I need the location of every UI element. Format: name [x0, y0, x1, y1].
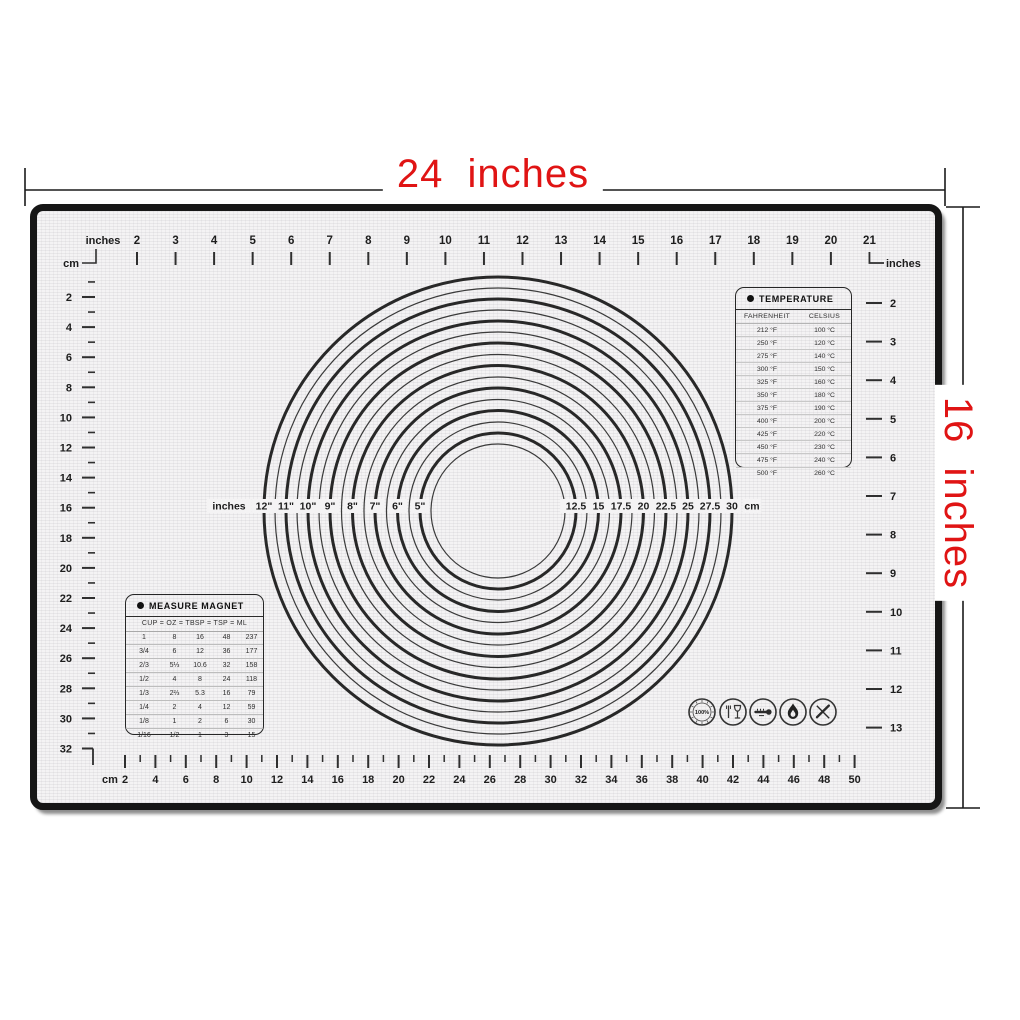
measure-row: 181648237: [126, 632, 263, 646]
measure-cell: 2: [187, 718, 213, 725]
temperature-table-title: TEMPERATURE: [736, 288, 851, 310]
measure-cell: 32: [213, 662, 240, 669]
measure-cell: 118: [240, 676, 263, 683]
measure-row: 1/24824118: [126, 673, 263, 687]
measure-cell: 4: [187, 704, 213, 711]
measure-cell: 2: [162, 704, 187, 711]
measure-row: 1/4241259: [126, 701, 263, 715]
temperature-cell: 250 °F: [736, 340, 798, 347]
temperature-cell: 400 °F: [736, 418, 798, 425]
temperature-row: 212 °F100 °C: [736, 324, 851, 337]
seal-tick: [696, 720, 697, 722]
measure-cell: 2/3: [126, 662, 162, 669]
measure-cell: 1/2: [126, 676, 162, 683]
flame-icon-ring: [780, 699, 806, 725]
temperature-cell: 190 °C: [798, 405, 851, 412]
temperature-cell: 500 °F: [736, 470, 798, 477]
measure-cell: 30: [240, 718, 263, 725]
food-safe-glass-icon-ring: [720, 699, 746, 725]
temperature-table-rows: 212 °F100 °C250 °F120 °C275 °F140 °C300 …: [736, 324, 851, 480]
measure-row: 2/35⅓10.632158: [126, 659, 263, 673]
temperature-row: 250 °F120 °C: [736, 337, 851, 350]
measure-cell: 2⅔: [162, 690, 187, 697]
measure-cell: 1/3: [126, 690, 162, 697]
measure-cell: 10.6: [187, 662, 213, 669]
measure-cell: 5.3: [187, 690, 213, 697]
quality-100-percent-icon: 100%: [687, 697, 717, 727]
temperature-cell: 200 °C: [798, 418, 851, 425]
measure-cell: 6: [162, 648, 187, 655]
temperature-cell: 350 °F: [736, 392, 798, 399]
temperature-cell: 300 °F: [736, 366, 798, 373]
measure-cell: 1: [162, 718, 187, 725]
thermometer-icon: [748, 697, 778, 727]
measure-cell: 8: [187, 676, 213, 683]
measure-row: 1/32⅔5.31679: [126, 687, 263, 701]
product-image: 23456789101112131415161718192021inchescm…: [0, 0, 1020, 1020]
temperature-cell: 120 °C: [798, 340, 851, 347]
temperature-table-columns: FAHRENHEITCELSIUS: [736, 310, 851, 324]
temperature-cell: 140 °C: [798, 353, 851, 360]
measure-title-text: MEASURE MAGNET: [149, 601, 244, 611]
measure-cell: 1/2: [162, 732, 187, 739]
seal-tick: [692, 717, 694, 718]
seal-tick: [707, 702, 708, 704]
seal-label: 100%: [695, 710, 709, 716]
temperature-row: 500 °F260 °C: [736, 468, 851, 480]
measure-cell: 1/8: [126, 718, 162, 725]
measure-cell: 6: [213, 718, 240, 725]
flame-icon: [778, 697, 808, 727]
temperature-row: 375 °F190 °C: [736, 402, 851, 415]
glass-bowl: [734, 706, 740, 712]
temperature-table: TEMPERATURE FAHRENHEITCELSIUS 212 °F100 …: [735, 287, 852, 468]
temperature-cell: 425 °F: [736, 431, 798, 438]
measure-cell: 12: [187, 648, 213, 655]
temperature-cell: 160 °C: [798, 379, 851, 386]
temperature-row: 400 °F200 °C: [736, 415, 851, 428]
measure-cell: 1: [126, 634, 162, 641]
measure-cell: 4: [162, 676, 187, 683]
temperature-cell: 475 °F: [736, 457, 798, 464]
temperature-cell: 230 °C: [798, 444, 851, 451]
measure-cell: 8: [162, 634, 187, 641]
measure-cell: 79: [240, 690, 263, 697]
temperature-column-header: CELSIUS: [798, 313, 851, 320]
temperature-row: 275 °F140 °C: [736, 350, 851, 363]
no-knife-icon: [808, 697, 838, 727]
temperature-column-header: FAHRENHEIT: [736, 313, 798, 320]
width-dimension-label: 24 inches: [383, 150, 603, 198]
temperature-row: 300 °F150 °C: [736, 363, 851, 376]
temperature-cell: 375 °F: [736, 405, 798, 412]
measure-cell: 3: [213, 732, 240, 739]
food-safe-glass-icon: [718, 697, 748, 727]
food-safe-glass-icon: [718, 697, 748, 727]
measure-table: MEASURE MAGNET CUP = OZ = TBSP = TSP = M…: [125, 594, 264, 735]
temperature-title-text: TEMPERATURE: [759, 294, 833, 304]
flame-shape: [788, 704, 798, 719]
temperature-cell: 220 °C: [798, 431, 851, 438]
temperature-cell: 180 °C: [798, 392, 851, 399]
bullet-icon: [747, 295, 754, 302]
measure-cell: 5⅓: [162, 662, 187, 669]
bullet-icon: [137, 602, 144, 609]
temperature-cell: 450 °F: [736, 444, 798, 451]
temperature-row: 425 °F220 °C: [736, 428, 851, 441]
quality-100-percent-icon: 100%: [687, 697, 717, 727]
measure-cell: 24: [213, 676, 240, 683]
measure-row: 1/812630: [126, 715, 263, 729]
measure-cell: 1/16: [126, 732, 162, 739]
measure-cell: 3/4: [126, 648, 162, 655]
temperature-cell: 212 °F: [736, 327, 798, 334]
measure-cell: 1: [187, 732, 213, 739]
temperature-cell: 240 °C: [798, 457, 851, 464]
measure-table-title: MEASURE MAGNET: [126, 595, 263, 617]
measure-cell: 237: [240, 634, 263, 641]
measure-row: 1/161/21315: [126, 729, 263, 742]
measure-table-header: CUP = OZ = TBSP = TSP = ML: [126, 617, 263, 632]
temperature-row: 325 °F160 °C: [736, 376, 851, 389]
measure-cell: 48: [213, 634, 240, 641]
height-dimension-label: 16 inches: [935, 385, 981, 601]
temperature-cell: 100 °C: [798, 327, 851, 334]
measure-cell: 158: [240, 662, 263, 669]
measure-cell: 59: [240, 704, 263, 711]
temperature-cell: 150 °C: [798, 366, 851, 373]
temperature-row: 350 °F180 °C: [736, 389, 851, 402]
measure-cell: 177: [240, 648, 263, 655]
temperature-cell: 260 °C: [798, 470, 851, 477]
thermometer-icon: [748, 697, 778, 727]
measure-cell: 36: [213, 648, 240, 655]
measure-table-rows: 1816482373/4612361772/35⅓10.6321581/2482…: [126, 632, 263, 742]
seal-tick: [696, 702, 697, 704]
thermometer-bulb: [766, 709, 772, 715]
temperature-row: 450 °F230 °C: [736, 441, 851, 454]
measure-cell: 1/4: [126, 704, 162, 711]
temperature-cell: 275 °F: [736, 353, 798, 360]
seal-tick: [707, 720, 708, 722]
seal-tick: [710, 717, 712, 718]
measure-cell: 16: [187, 634, 213, 641]
flame-icon: [778, 697, 808, 727]
temperature-cell: 325 °F: [736, 379, 798, 386]
seal-tick: [692, 706, 694, 707]
seal-tick: [710, 706, 712, 707]
no-knife-icon: [808, 697, 838, 727]
measure-cell: 15: [240, 732, 263, 739]
measure-row: 3/461236177: [126, 645, 263, 659]
measure-cell: 12: [213, 704, 240, 711]
measure-cell: 16: [213, 690, 240, 697]
temperature-row: 475 °F240 °C: [736, 454, 851, 467]
